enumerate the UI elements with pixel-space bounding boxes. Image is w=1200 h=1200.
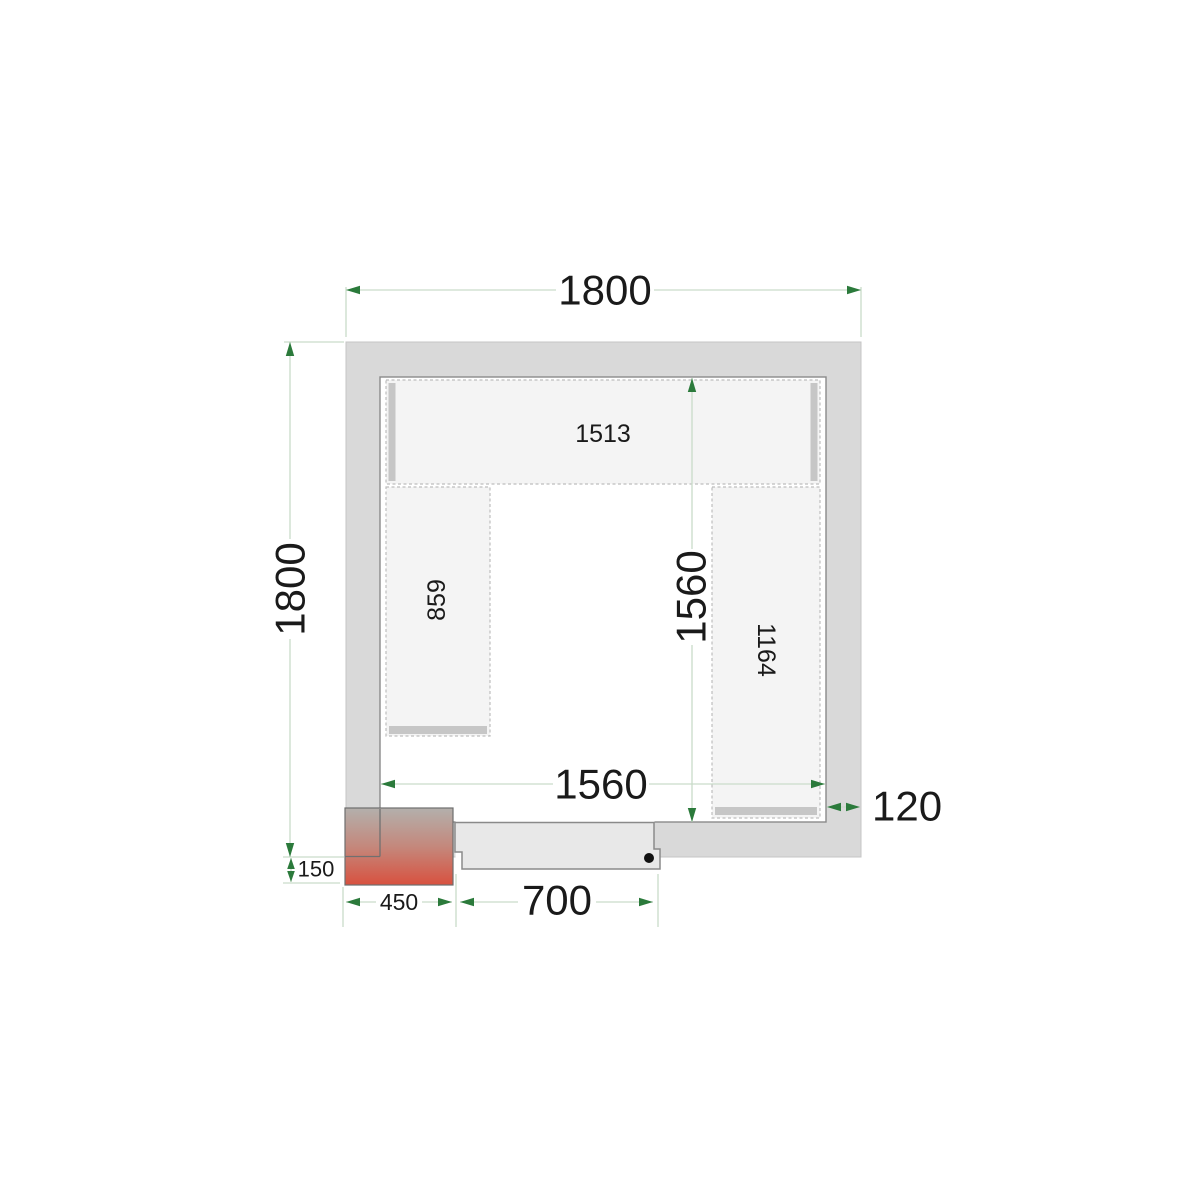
dim-unit-width-value: 450: [380, 889, 418, 915]
shelf-edge-strip: [389, 726, 487, 734]
dim-unit-protrusion-value: 150: [298, 857, 335, 882]
shelf-edge-strip: [811, 383, 818, 481]
dim-inner-width-value: 1560: [554, 761, 647, 808]
dim-outer-width: 1800: [346, 267, 861, 338]
shelf-edge-strip: [715, 807, 817, 815]
door-leaf: [455, 823, 660, 870]
door-handle-dot: [644, 853, 654, 863]
shelf-top-length-label: 1513: [575, 420, 631, 448]
arrowhead-down-icon: [287, 871, 295, 882]
floor-plan-drawing: 1513 859 1164 1800: [0, 0, 1200, 1200]
dim-unit-width: 450: [343, 887, 452, 927]
arrowhead-right-icon: [438, 898, 452, 906]
arrowhead-left-icon: [346, 898, 360, 906]
arrowhead-right-icon: [847, 286, 861, 294]
arrowhead-right-icon: [639, 898, 653, 906]
arrowhead-left-icon: [460, 898, 474, 906]
arrowhead-left-icon: [346, 286, 360, 294]
dim-outer-depth-value: 1800: [267, 542, 314, 635]
dim-outer-depth: 1800: [267, 342, 345, 857]
shelf-right-length-label: 1164: [752, 623, 780, 677]
door: [455, 823, 660, 870]
arrowhead-up-icon: [286, 342, 294, 356]
arrowhead-up-icon: [287, 858, 295, 869]
dim-door-opening-value: 700: [522, 877, 592, 924]
shelf-left-length-label: 859: [423, 579, 451, 621]
dim-inner-depth-value: 1560: [668, 550, 715, 643]
arrowhead-down-icon: [286, 843, 294, 857]
dim-wall-thickness-value: 120: [872, 783, 942, 830]
condensing-unit: [345, 808, 453, 885]
shelf-left: 859: [386, 487, 490, 736]
dim-door-opening: 700: [456, 874, 658, 927]
dim-outer-width-value: 1800: [558, 267, 651, 314]
shelf-right: 1164: [712, 487, 820, 818]
shelf-edge-strip: [389, 383, 396, 481]
shelf-top: 1513: [386, 380, 820, 484]
dim-unit-protrusion: 150: [283, 857, 340, 884]
